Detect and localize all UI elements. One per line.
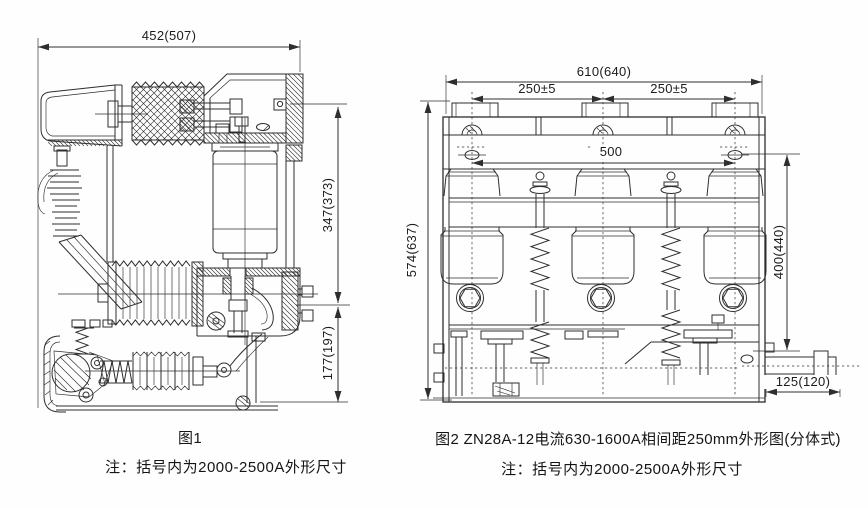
fig1-note: 注：括号内为2000-2500A外形尺寸	[76, 459, 376, 476]
fig1-dim-upper-height: 347(373)	[321, 160, 335, 250]
fig2-mechanism-strip	[434, 315, 759, 396]
fig2-dim-phase-spacing-left: 250±5	[502, 82, 572, 96]
fig2-drawing	[420, 75, 860, 402]
fig2-lower-insulators	[441, 227, 766, 284]
fig2-dim-hole-spacing: 500	[591, 145, 631, 159]
fig2-dim-phase-spacing-right: 250±5	[634, 82, 704, 96]
fig2-contact-springs	[530, 172, 681, 385]
fig1-mechanism-box	[197, 268, 313, 341]
fig2-dim-pole-height: 400(440)	[772, 207, 786, 297]
fig1-drive-arm	[38, 146, 142, 309]
fig1-dim-lower-height: 177(197)	[321, 308, 335, 398]
fig2-dim-overall-height: 574(637)	[405, 205, 419, 295]
engineering-drawing-page: 452(507) 347(373) 177(197) 图1 注：括号内为2000…	[0, 0, 868, 508]
fig2-note: 注：括号内为2000-2500A外形尺寸	[462, 461, 782, 478]
fig1-operating-mechanism	[44, 320, 132, 412]
fig1-upper-arm-bracket	[41, 82, 242, 146]
fig2-dim-shaft-extension: 125(120)	[763, 375, 843, 389]
fig2-caption: 图2 ZN28A-12电流630-1600A相间距250mm外形图(分体式)	[408, 432, 868, 448]
fig2-dim-overall-width: 610(640)	[554, 65, 654, 79]
fig2-middle-beam	[449, 198, 759, 227]
fig1-dim-overall-width: 452(507)	[124, 29, 214, 43]
fig1-base-frame	[56, 336, 278, 410]
fig2-bolt-circles	[457, 285, 747, 312]
fig1-caption: 图1	[150, 431, 230, 447]
fig1-drawing	[38, 38, 350, 412]
fig2-upper-insulators	[444, 169, 763, 196]
